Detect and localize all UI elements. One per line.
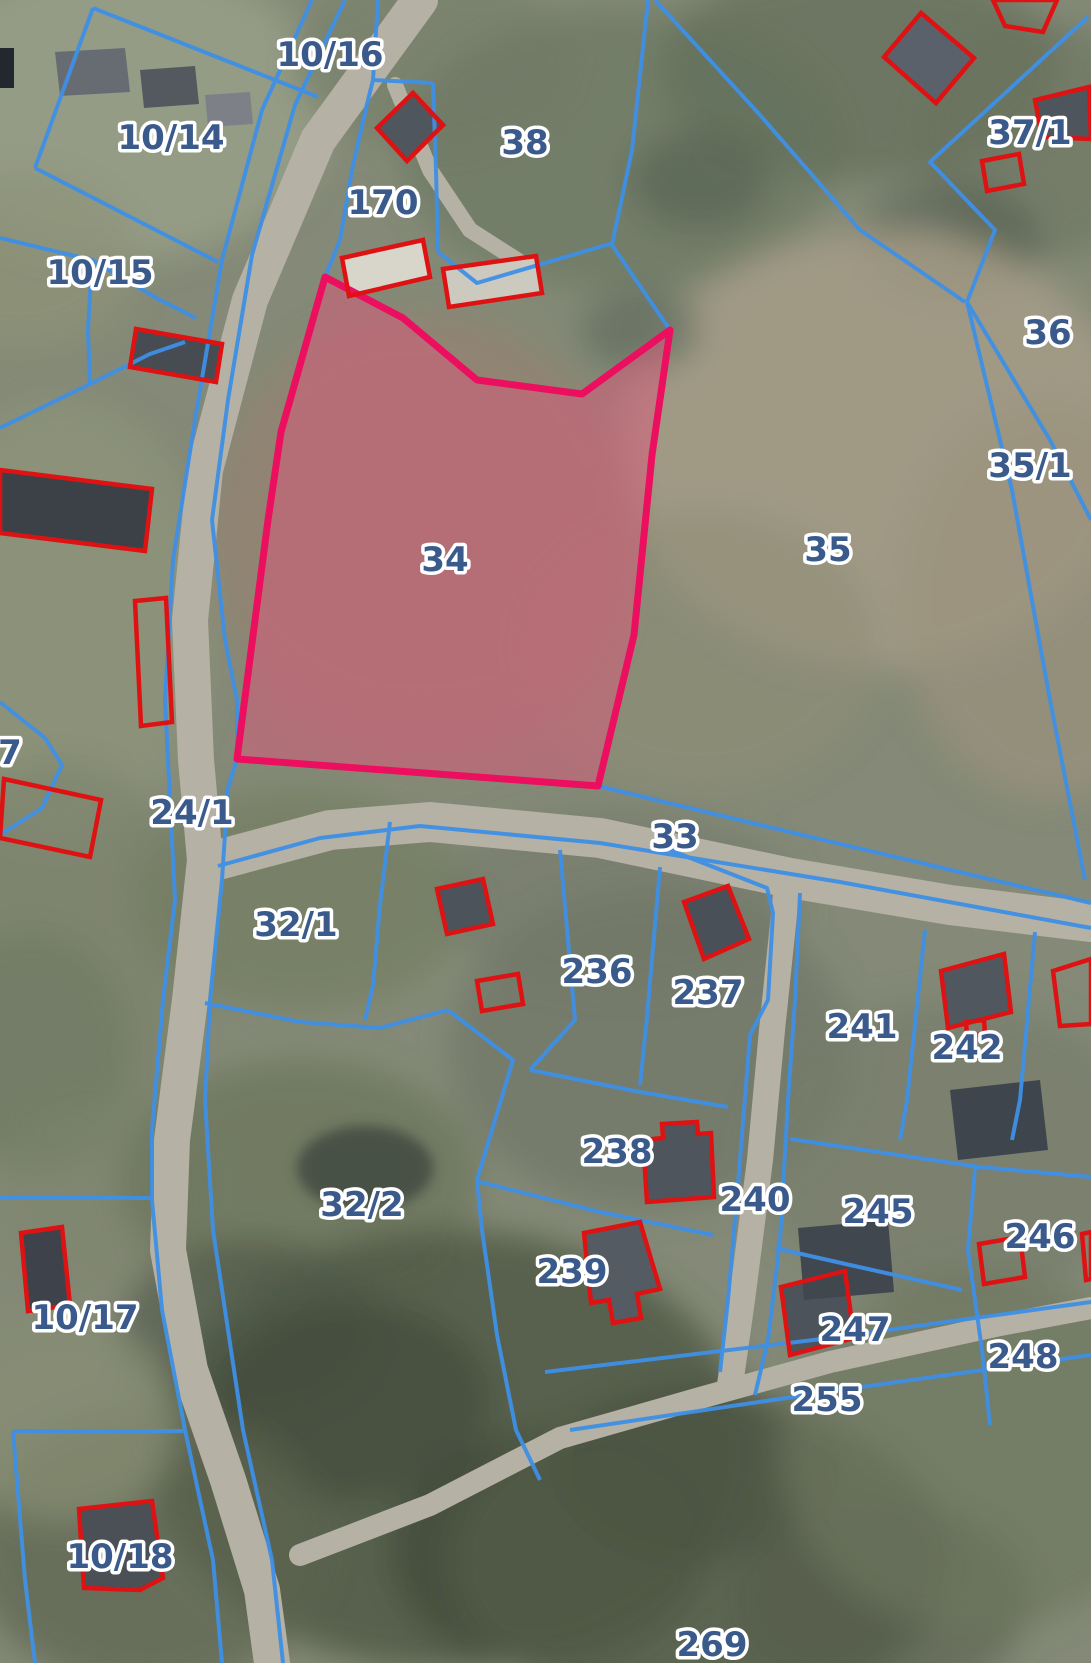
parcel-label-35: 35 [804, 530, 851, 570]
parcel-label-33: 33 [651, 817, 698, 857]
parcel-label-10-16: 10/16 [276, 35, 383, 75]
parcel-label-32-1: 32/1 [254, 905, 337, 945]
building-roof [55, 48, 130, 96]
parcel-label-237: 237 [673, 973, 744, 1013]
map-svg[interactable]: 10/1610/143817037/110/153635/13534724/13… [0, 0, 1091, 1663]
parcel-label-269: 269 [677, 1625, 748, 1663]
parcel-label-24-1: 24/1 [150, 793, 233, 833]
parcel-label-239: 239 [537, 1252, 608, 1292]
parcel-label-7: 7 [0, 733, 22, 773]
parcel-label-10-14: 10/14 [117, 118, 224, 158]
parcel-label-240: 240 [720, 1180, 791, 1220]
parcel-label-32-2: 32/2 [320, 1185, 403, 1225]
parcel-label-38: 38 [501, 123, 548, 163]
building-roof [950, 1080, 1048, 1160]
parcel-label-36: 36 [1024, 313, 1071, 353]
parcel-label-241: 241 [827, 1007, 898, 1047]
edge-mark [0, 48, 14, 88]
parcel-label-255: 255 [792, 1380, 863, 1420]
parcel-label-238: 238 [582, 1132, 653, 1172]
parcel-boundary-line [0, 1197, 152, 1198]
parcel-label-236: 236 [562, 952, 633, 992]
parcel-label-245: 245 [843, 1192, 914, 1232]
parcel-label-246: 246 [1005, 1217, 1076, 1257]
parcel-label-10-15: 10/15 [46, 253, 153, 293]
building-roof [140, 66, 199, 108]
parcel-label-10-17: 10/17 [31, 1298, 138, 1338]
map-viewport[interactable]: 10/1610/143817037/110/153635/13534724/13… [0, 0, 1091, 1663]
parcel-label-170: 170 [348, 183, 419, 223]
parcel-label-34: 34 [421, 540, 468, 580]
parcel-label-247: 247 [820, 1310, 891, 1350]
parcel-label-248: 248 [988, 1337, 1059, 1377]
parcel-label-242: 242 [932, 1028, 1003, 1068]
parcel-label-10-18: 10/18 [66, 1537, 173, 1577]
parcel-label-35-1: 35/1 [988, 446, 1071, 486]
parcel-label-37-1: 37/1 [988, 113, 1071, 153]
